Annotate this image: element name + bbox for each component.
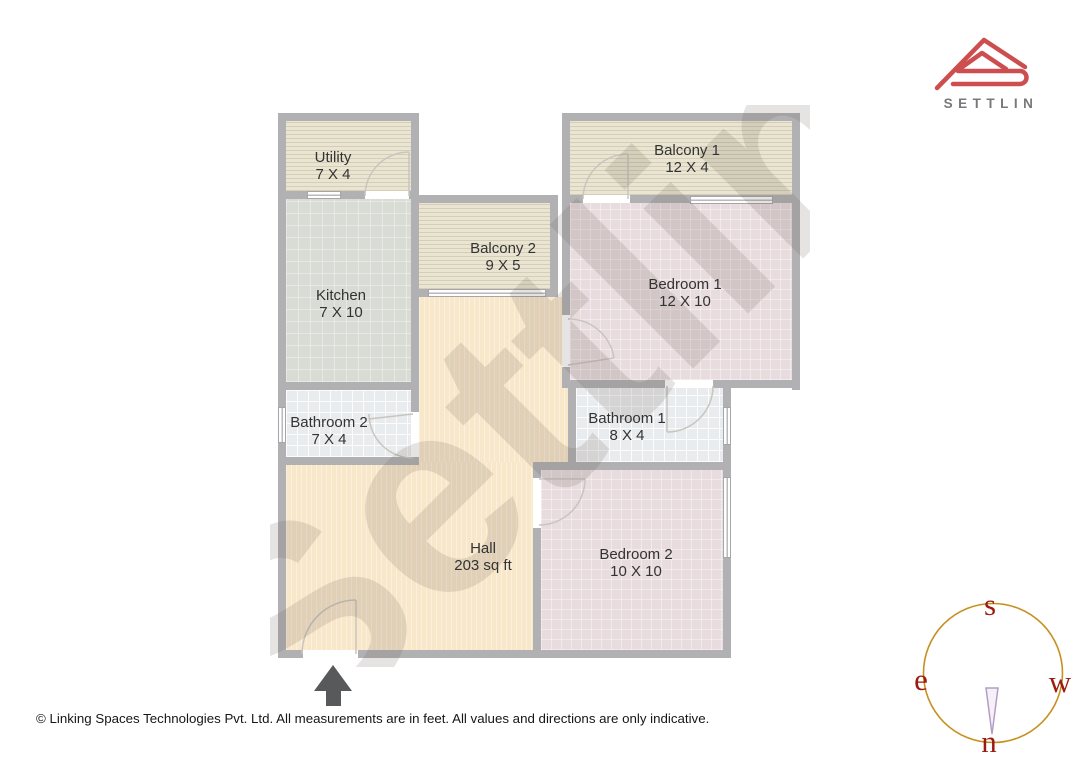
room-label-utility: Utility 7 X 4 [315, 149, 352, 183]
room-dims: 8 X 4 [588, 427, 666, 444]
floor-plan: Settlin Utility 7 X 4 Balcony 1 12 X 4 B… [0, 0, 1080, 764]
door-arc-balcony1 [583, 154, 628, 199]
room-dims: 7 X 4 [315, 166, 352, 183]
door-arc-utility [365, 152, 409, 196]
door-arc-entrance [302, 600, 356, 654]
room-name: Bedroom 1 [648, 276, 721, 293]
door-arc-bedroom2 [539, 479, 585, 525]
room-label-balcony1: Balcony 1 12 X 4 [654, 142, 720, 176]
room-label-bathroom2: Bathroom 2 7 X 4 [290, 414, 368, 448]
room-label-bathroom1: Bathroom 1 8 X 4 [588, 410, 666, 444]
room-label-balcony2: Balcony 2 9 X 5 [470, 240, 536, 274]
room-dims: 203 sq ft [454, 557, 512, 574]
room-dims: 7 X 4 [290, 431, 368, 448]
room-dims: 10 X 10 [599, 563, 672, 580]
room-name: Bathroom 2 [290, 414, 368, 431]
room-label-kitchen: Kitchen 7 X 10 [316, 287, 366, 321]
floor-plan-page: SETTLIN [0, 0, 1080, 764]
room-name: Utility [315, 149, 352, 166]
room-dims: 12 X 10 [648, 293, 721, 310]
room-dims: 12 X 4 [654, 159, 720, 176]
room-label-bedroom2: Bedroom 2 10 X 10 [599, 546, 672, 580]
room-label-hall: Hall 203 sq ft [454, 540, 512, 574]
room-name: Hall [454, 540, 512, 557]
room-name: Bedroom 2 [599, 546, 672, 563]
room-dims: 7 X 10 [316, 304, 366, 321]
door-arc-bathroom1 [667, 386, 713, 432]
door-arc-bedroom1 [568, 319, 614, 365]
room-dims: 9 X 5 [470, 257, 536, 274]
room-name: Bathroom 1 [588, 410, 666, 427]
room-name: Balcony 2 [470, 240, 536, 257]
copyright-note: © Linking Spaces Technologies Pvt. Ltd. … [36, 711, 709, 726]
door-swings [0, 0, 1080, 764]
door-arc-bathroom2 [369, 414, 413, 458]
room-name: Balcony 1 [654, 142, 720, 159]
room-name: Kitchen [316, 287, 366, 304]
room-label-bedroom1: Bedroom 1 12 X 10 [648, 276, 721, 310]
